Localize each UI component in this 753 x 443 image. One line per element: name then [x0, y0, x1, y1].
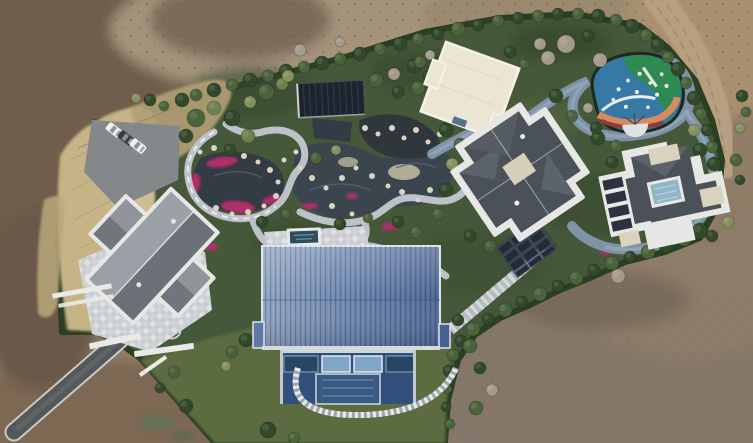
shrub-highlight	[694, 225, 701, 232]
shrub-highlight	[697, 110, 702, 115]
shrub-highlight	[488, 386, 493, 391]
shrub-highlight	[192, 91, 197, 96]
shrub-highlight	[260, 86, 267, 93]
shrub-highlight	[364, 214, 369, 219]
shrub-highlight	[593, 11, 599, 17]
aerial-photo-stage	[0, 0, 753, 443]
shrub-highlight	[412, 228, 417, 233]
shrub-highlight	[278, 80, 283, 85]
shrub-highlight	[574, 10, 579, 15]
shrub-highlight	[371, 75, 377, 81]
shrub-highlight	[264, 72, 269, 77]
shrub-highlight	[445, 367, 450, 372]
shrub-highlight	[290, 434, 295, 439]
rock	[211, 145, 217, 151]
spa-pool	[287, 227, 322, 246]
shrub-highlight	[590, 266, 595, 271]
shrub-highlight	[156, 384, 161, 389]
rock	[298, 166, 303, 171]
estate-aerial-photo	[0, 0, 753, 443]
shrub-highlight	[434, 210, 439, 215]
rock	[309, 175, 315, 181]
rock	[413, 127, 419, 133]
shrub-highlight	[595, 55, 601, 61]
shrub-highlight	[226, 146, 231, 151]
shrub-highlight	[394, 88, 399, 93]
glass-pavilion	[297, 80, 365, 117]
shrub-highlight	[453, 24, 459, 30]
shrub-highlight	[262, 424, 269, 431]
rock	[241, 153, 247, 159]
shrub-highlight	[160, 102, 165, 107]
rock	[256, 160, 261, 165]
shrub-highlight	[300, 62, 305, 67]
shrub-highlight	[454, 316, 459, 321]
shrub-highlight	[500, 305, 506, 311]
shrub-highlight	[708, 143, 713, 148]
shrub-highlight	[355, 49, 361, 55]
rock	[399, 189, 405, 195]
shrub-highlight	[626, 253, 631, 258]
shrub-highlight	[376, 45, 381, 50]
shrub-highlight	[559, 37, 567, 45]
shrub-highlight	[414, 35, 419, 40]
shrub-highlight	[226, 112, 233, 119]
shrub-highlight	[209, 85, 215, 91]
shrub-highlight	[584, 104, 589, 109]
shrub-highlight	[738, 92, 743, 97]
shrub-highlight	[554, 282, 559, 287]
shrub-highlight	[568, 112, 573, 117]
shrub-highlight	[284, 72, 289, 77]
shrub-highlight	[571, 273, 577, 279]
shrub-highlight	[228, 81, 233, 86]
shrub-highlight	[132, 94, 137, 99]
shrub-highlight	[689, 93, 695, 99]
shrub-highlight	[441, 125, 447, 131]
rock	[262, 204, 267, 209]
shrub-highlight	[514, 14, 519, 19]
shrub-highlight	[534, 12, 539, 17]
shrub-highlight	[146, 96, 151, 101]
shrub-highlight	[535, 289, 541, 295]
shrub-highlight	[494, 17, 499, 22]
shrub-highlight	[336, 38, 341, 43]
shrub-highlight	[228, 348, 233, 353]
shrub-highlight	[474, 21, 479, 26]
rock	[276, 180, 281, 185]
shrub-highlight	[394, 218, 399, 223]
shrub-highlight	[608, 158, 613, 163]
rock	[230, 212, 235, 217]
rock	[329, 203, 335, 209]
rock	[245, 209, 251, 215]
shrub-highlight	[471, 403, 477, 409]
shrub-highlight	[296, 46, 301, 51]
shrub-highlight	[607, 258, 613, 264]
shrub-highlight	[416, 58, 421, 63]
rock	[369, 173, 375, 179]
shrub-highlight	[441, 185, 447, 191]
shrub-highlight	[673, 64, 679, 70]
sand-bank	[388, 164, 420, 180]
shrub-highlight	[243, 131, 249, 137]
shrub-highlight	[643, 247, 649, 253]
rock	[362, 125, 368, 131]
flower-bed	[302, 203, 318, 209]
shrub-highlight	[486, 242, 491, 247]
rock	[198, 150, 203, 155]
rock	[324, 186, 329, 191]
shrub-highlight	[732, 156, 737, 161]
shrub-highlight	[520, 60, 525, 65]
shrub-highlight	[551, 91, 557, 97]
rock	[294, 150, 299, 155]
shrub-highlight	[434, 30, 439, 35]
rock	[427, 187, 433, 193]
shrub-highlight	[246, 98, 251, 103]
rock	[282, 158, 287, 163]
shrub-highlight	[426, 51, 431, 56]
shrub-highlight	[449, 351, 454, 356]
shrub-highlight	[476, 364, 481, 369]
shrub-highlight	[543, 53, 549, 59]
shrub-highlight	[708, 232, 713, 237]
rock	[213, 205, 219, 211]
shrub-highlight	[390, 70, 395, 75]
rock	[350, 212, 355, 217]
rock	[376, 132, 381, 137]
shrub-highlight	[653, 40, 659, 46]
shrub-highlight	[703, 126, 708, 131]
shrub-highlight	[317, 58, 323, 64]
shrub-highlight	[282, 210, 287, 215]
shrub-highlight	[736, 124, 741, 129]
shrub-highlight	[312, 154, 317, 159]
shrub-highlight	[170, 368, 175, 373]
shrub-highlight	[457, 337, 462, 342]
shrub-highlight	[592, 124, 597, 129]
shrub-highlight	[724, 218, 729, 223]
shrub-highlight	[518, 298, 523, 303]
shrub-highlight	[536, 40, 541, 45]
shrub-highlight	[466, 232, 471, 237]
shrub-highlight	[468, 324, 474, 330]
shrub-highlight	[395, 39, 401, 45]
shrub-highlight	[181, 131, 187, 137]
shrub-highlight	[336, 55, 341, 60]
shrub-highlight	[695, 145, 701, 151]
shrub-highlight	[245, 75, 251, 81]
shrub-highlight	[642, 31, 647, 36]
shrub-highlight	[222, 362, 227, 367]
flower-bed	[346, 193, 358, 199]
shrub-highlight	[258, 218, 263, 223]
rock	[339, 175, 345, 181]
shrub-highlight	[584, 32, 589, 37]
shrub-highlight	[209, 103, 215, 109]
rock	[426, 140, 431, 145]
shrub-highlight	[506, 48, 511, 53]
rock	[389, 125, 395, 131]
shrub-highlight	[612, 16, 617, 21]
shrub-highlight	[664, 53, 669, 58]
shrub-highlight	[627, 21, 633, 27]
shrub-highlight	[177, 95, 183, 101]
rock	[273, 193, 279, 199]
shrub-highlight	[612, 142, 617, 147]
shrub-highlight	[448, 160, 453, 165]
rock	[416, 198, 421, 203]
shrub-highlight	[709, 159, 715, 165]
shrub-highlight	[189, 111, 197, 119]
shrub-highlight	[181, 401, 187, 407]
shrub-highlight	[484, 315, 489, 320]
shrub-highlight	[736, 176, 741, 181]
shrub-highlight	[413, 83, 419, 89]
shrub-highlight	[332, 146, 337, 151]
rock	[402, 136, 407, 141]
shrub-highlight	[682, 79, 687, 84]
shrub-highlight	[442, 403, 447, 408]
shrub-highlight	[690, 126, 695, 131]
shrub-highlight	[613, 271, 619, 277]
shrub-highlight	[446, 420, 451, 425]
shrub-highlight	[465, 341, 471, 347]
shrub-highlight	[554, 10, 559, 15]
shrub-highlight	[336, 220, 341, 225]
rock	[386, 184, 391, 189]
shrub-highlight	[742, 108, 747, 113]
rock	[354, 166, 359, 171]
shrub-highlight	[241, 335, 247, 341]
rock	[267, 167, 273, 173]
